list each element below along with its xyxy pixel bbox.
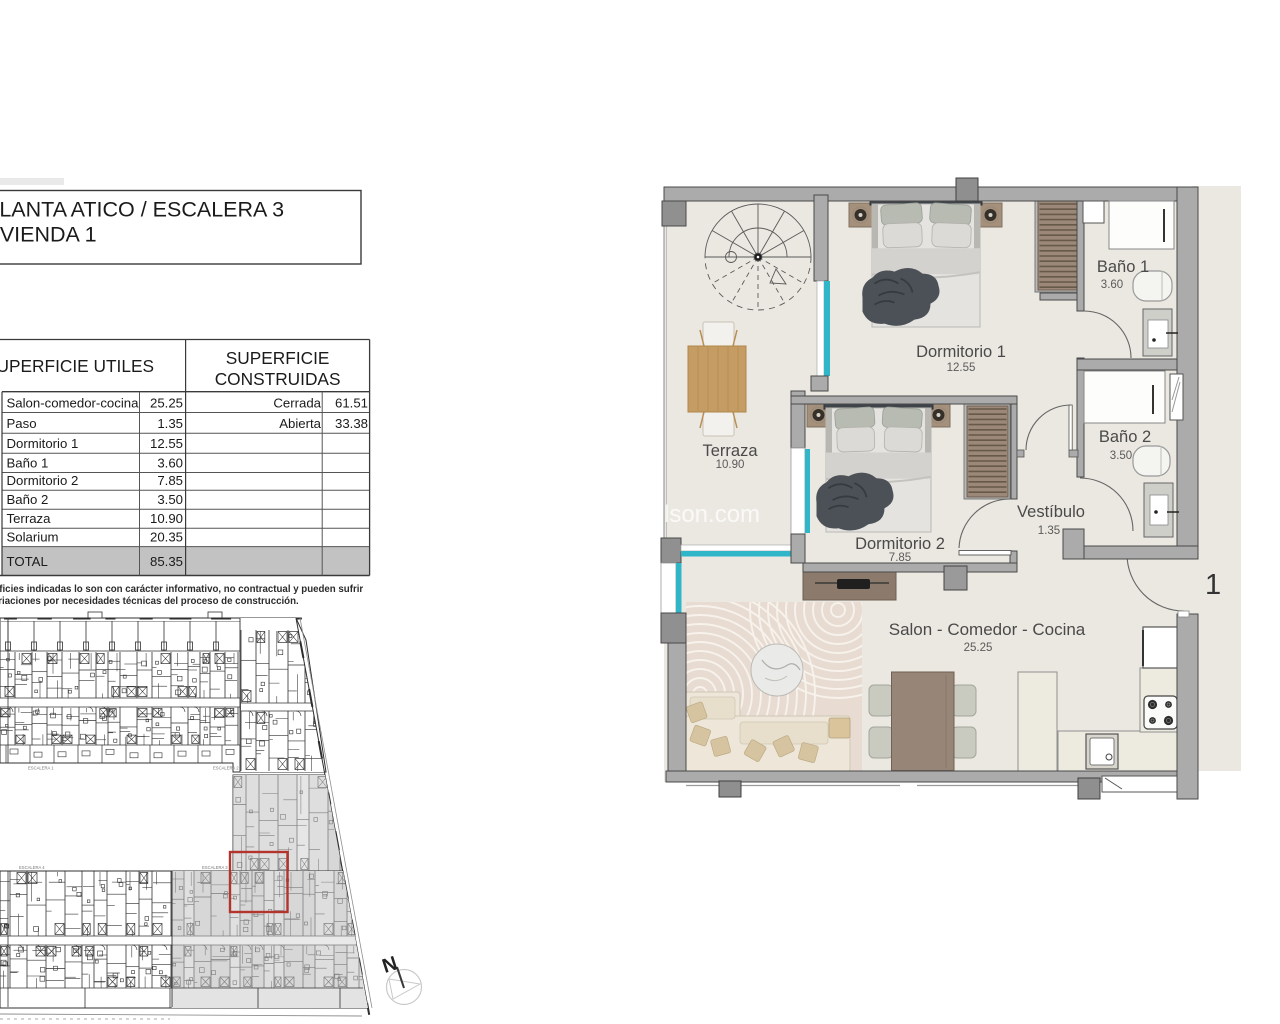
svg-text:3.60: 3.60 <box>157 456 183 471</box>
svg-text:SUPERFICIE: SUPERFICIE <box>226 348 330 368</box>
svg-text:PLANTA ATICO / ESCALERA 3: PLANTA ATICO / ESCALERA 3 <box>0 198 284 222</box>
svg-text:1.35: 1.35 <box>1038 525 1060 537</box>
svg-text:25.25: 25.25 <box>964 642 993 654</box>
svg-text:SUPERFICIE UTILES: SUPERFICIE UTILES <box>0 356 154 376</box>
svg-text:Dormitorio 1: Dormitorio 1 <box>7 436 79 451</box>
svg-text:12.55: 12.55 <box>150 436 183 451</box>
svg-text:10.90: 10.90 <box>716 459 745 471</box>
svg-text:20.35: 20.35 <box>150 530 183 545</box>
svg-text:ESCALERA 4: ESCALERA 4 <box>19 865 45 870</box>
svg-text:3.60: 3.60 <box>1101 279 1123 291</box>
svg-text:1.35: 1.35 <box>157 416 183 431</box>
svg-text:85.35: 85.35 <box>150 554 183 569</box>
svg-text:Vestíbulo: Vestíbulo <box>1017 503 1085 521</box>
svg-text:7.85: 7.85 <box>157 473 183 488</box>
svg-text:Solarium: Solarium <box>7 530 59 545</box>
svg-text:Salon-comedor-cocina: Salon-comedor-cocina <box>7 396 140 411</box>
svg-text:Abierta: Abierta <box>279 416 321 431</box>
svg-text:N: N <box>380 952 401 977</box>
svg-text:ESCALERA 1: ESCALERA 1 <box>28 766 54 771</box>
svg-text:33.38: 33.38 <box>335 416 368 431</box>
svg-text:3.50: 3.50 <box>1110 450 1132 462</box>
svg-text:3.50: 3.50 <box>157 492 183 507</box>
svg-text:61.51: 61.51 <box>335 396 368 411</box>
svg-text:10.90: 10.90 <box>150 511 183 526</box>
svg-text:Baño 1: Baño 1 <box>1097 258 1149 276</box>
svg-text:VIVIENDA 1: VIVIENDA 1 <box>0 223 97 247</box>
svg-text:12.55: 12.55 <box>947 362 976 374</box>
svg-text:25.25: 25.25 <box>150 396 183 411</box>
svg-text:variaciones por necesidades té: variaciones por necesidades técnicas del… <box>0 596 299 607</box>
svg-text:Cerrada: Cerrada <box>273 396 321 411</box>
svg-text:ESCALERA 3: ESCALERA 3 <box>202 865 228 870</box>
svg-text:TOTAL: TOTAL <box>7 554 48 569</box>
svg-text:Baño 2: Baño 2 <box>1099 428 1151 446</box>
svg-text:Baño 1: Baño 1 <box>7 456 49 471</box>
svg-text:1: 1 <box>1205 569 1221 601</box>
svg-text:Dormitorio 2: Dormitorio 2 <box>7 473 79 488</box>
svg-text:ESCALERA 2: ESCALERA 2 <box>213 766 239 771</box>
svg-text:Paso: Paso <box>7 416 37 431</box>
svg-text:Terraza: Terraza <box>702 442 758 460</box>
svg-text:Baño 2: Baño 2 <box>7 492 49 507</box>
svg-text:Dormitorio 2: Dormitorio 2 <box>855 535 945 553</box>
svg-text:Dormitorio 1: Dormitorio 1 <box>916 343 1006 361</box>
svg-text:CONSTRUIDAS: CONSTRUIDAS <box>215 369 341 389</box>
svg-text:Salon - Comedor - Cocina: Salon - Comedor - Cocina <box>889 620 1086 639</box>
svg-text:Terraza: Terraza <box>7 511 52 526</box>
svg-text:Las superficies indicadas lo s: Las superficies indicadas lo son con car… <box>0 584 363 595</box>
svg-text:7.85: 7.85 <box>889 552 911 564</box>
svg-text:lson.com: lson.com <box>664 501 760 528</box>
